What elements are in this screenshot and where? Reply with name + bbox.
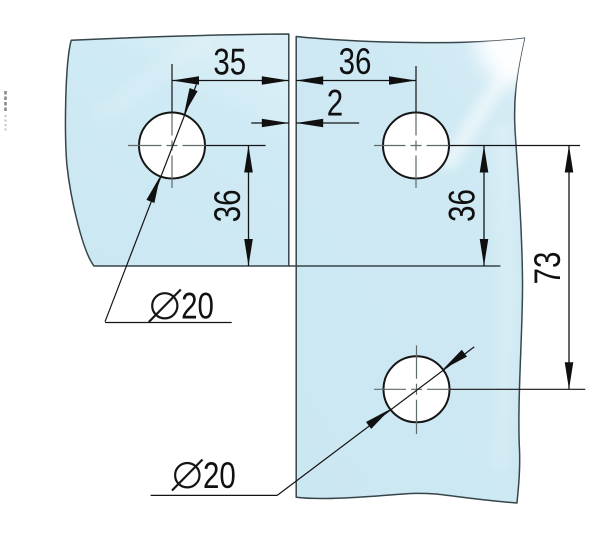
svg-text:73: 73 bbox=[526, 252, 568, 285]
svg-text:36: 36 bbox=[206, 190, 248, 223]
svg-text:36: 36 bbox=[440, 189, 482, 222]
svg-text:20: 20 bbox=[181, 285, 214, 327]
svg-text:2: 2 bbox=[327, 81, 343, 123]
svg-text:35: 35 bbox=[213, 40, 246, 82]
svg-text:20: 20 bbox=[203, 454, 236, 496]
svg-text:36: 36 bbox=[339, 40, 372, 82]
